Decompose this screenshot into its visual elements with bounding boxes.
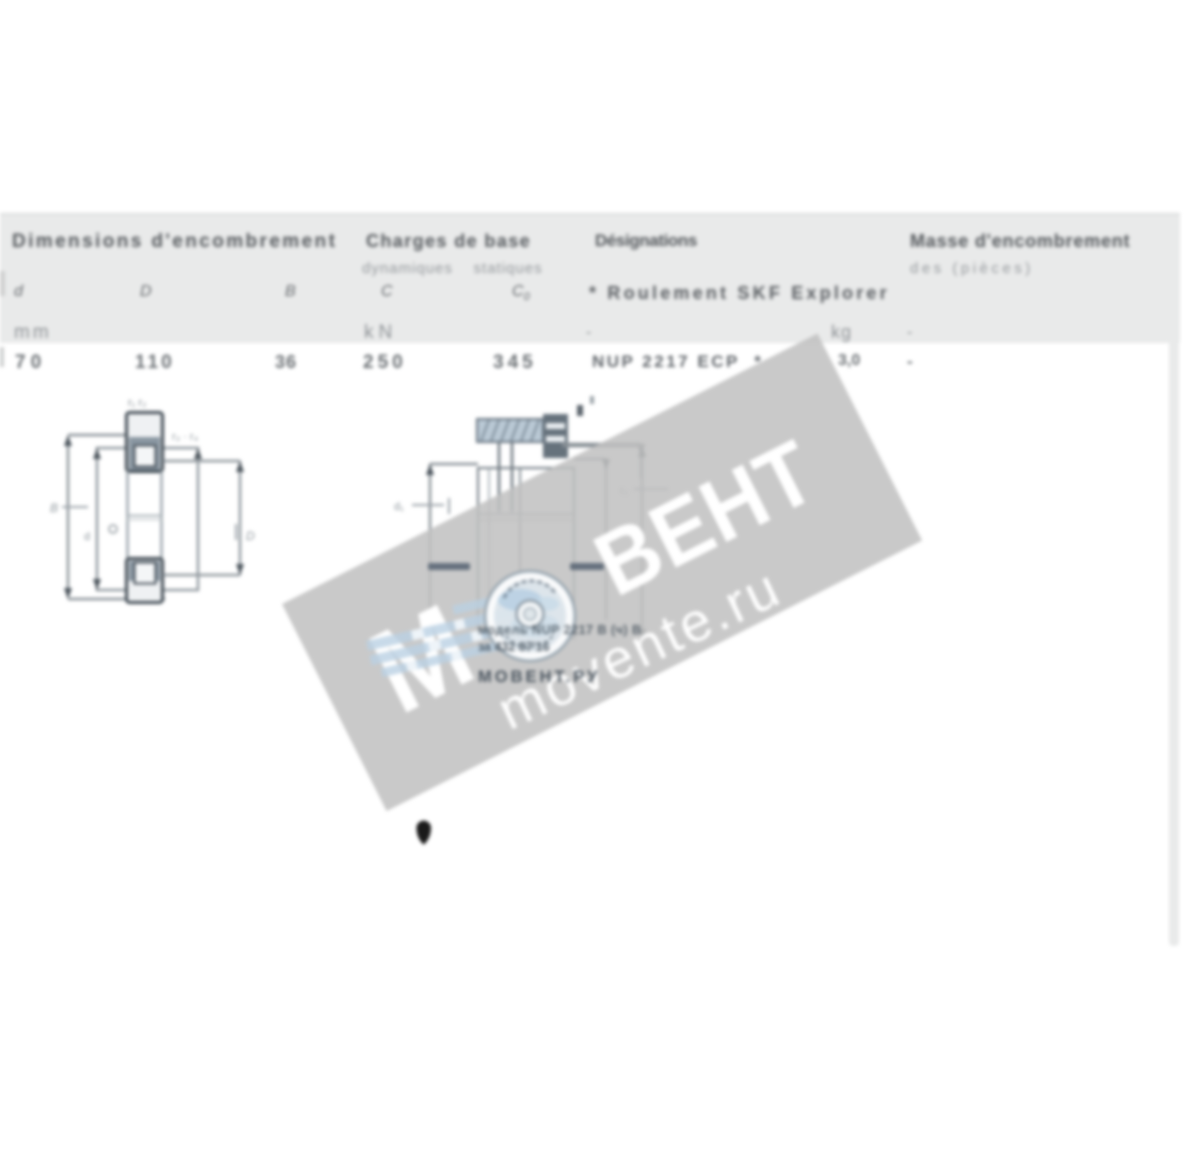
- svg-text:МОВЕНТ.РУ: МОВЕНТ.РУ: [478, 668, 600, 686]
- svg-text:модель NUP 2217 В (ч) В: модель NUP 2217 В (ч) В: [478, 623, 642, 637]
- svg-text:за 432 87'16: за 432 87'16: [478, 640, 550, 654]
